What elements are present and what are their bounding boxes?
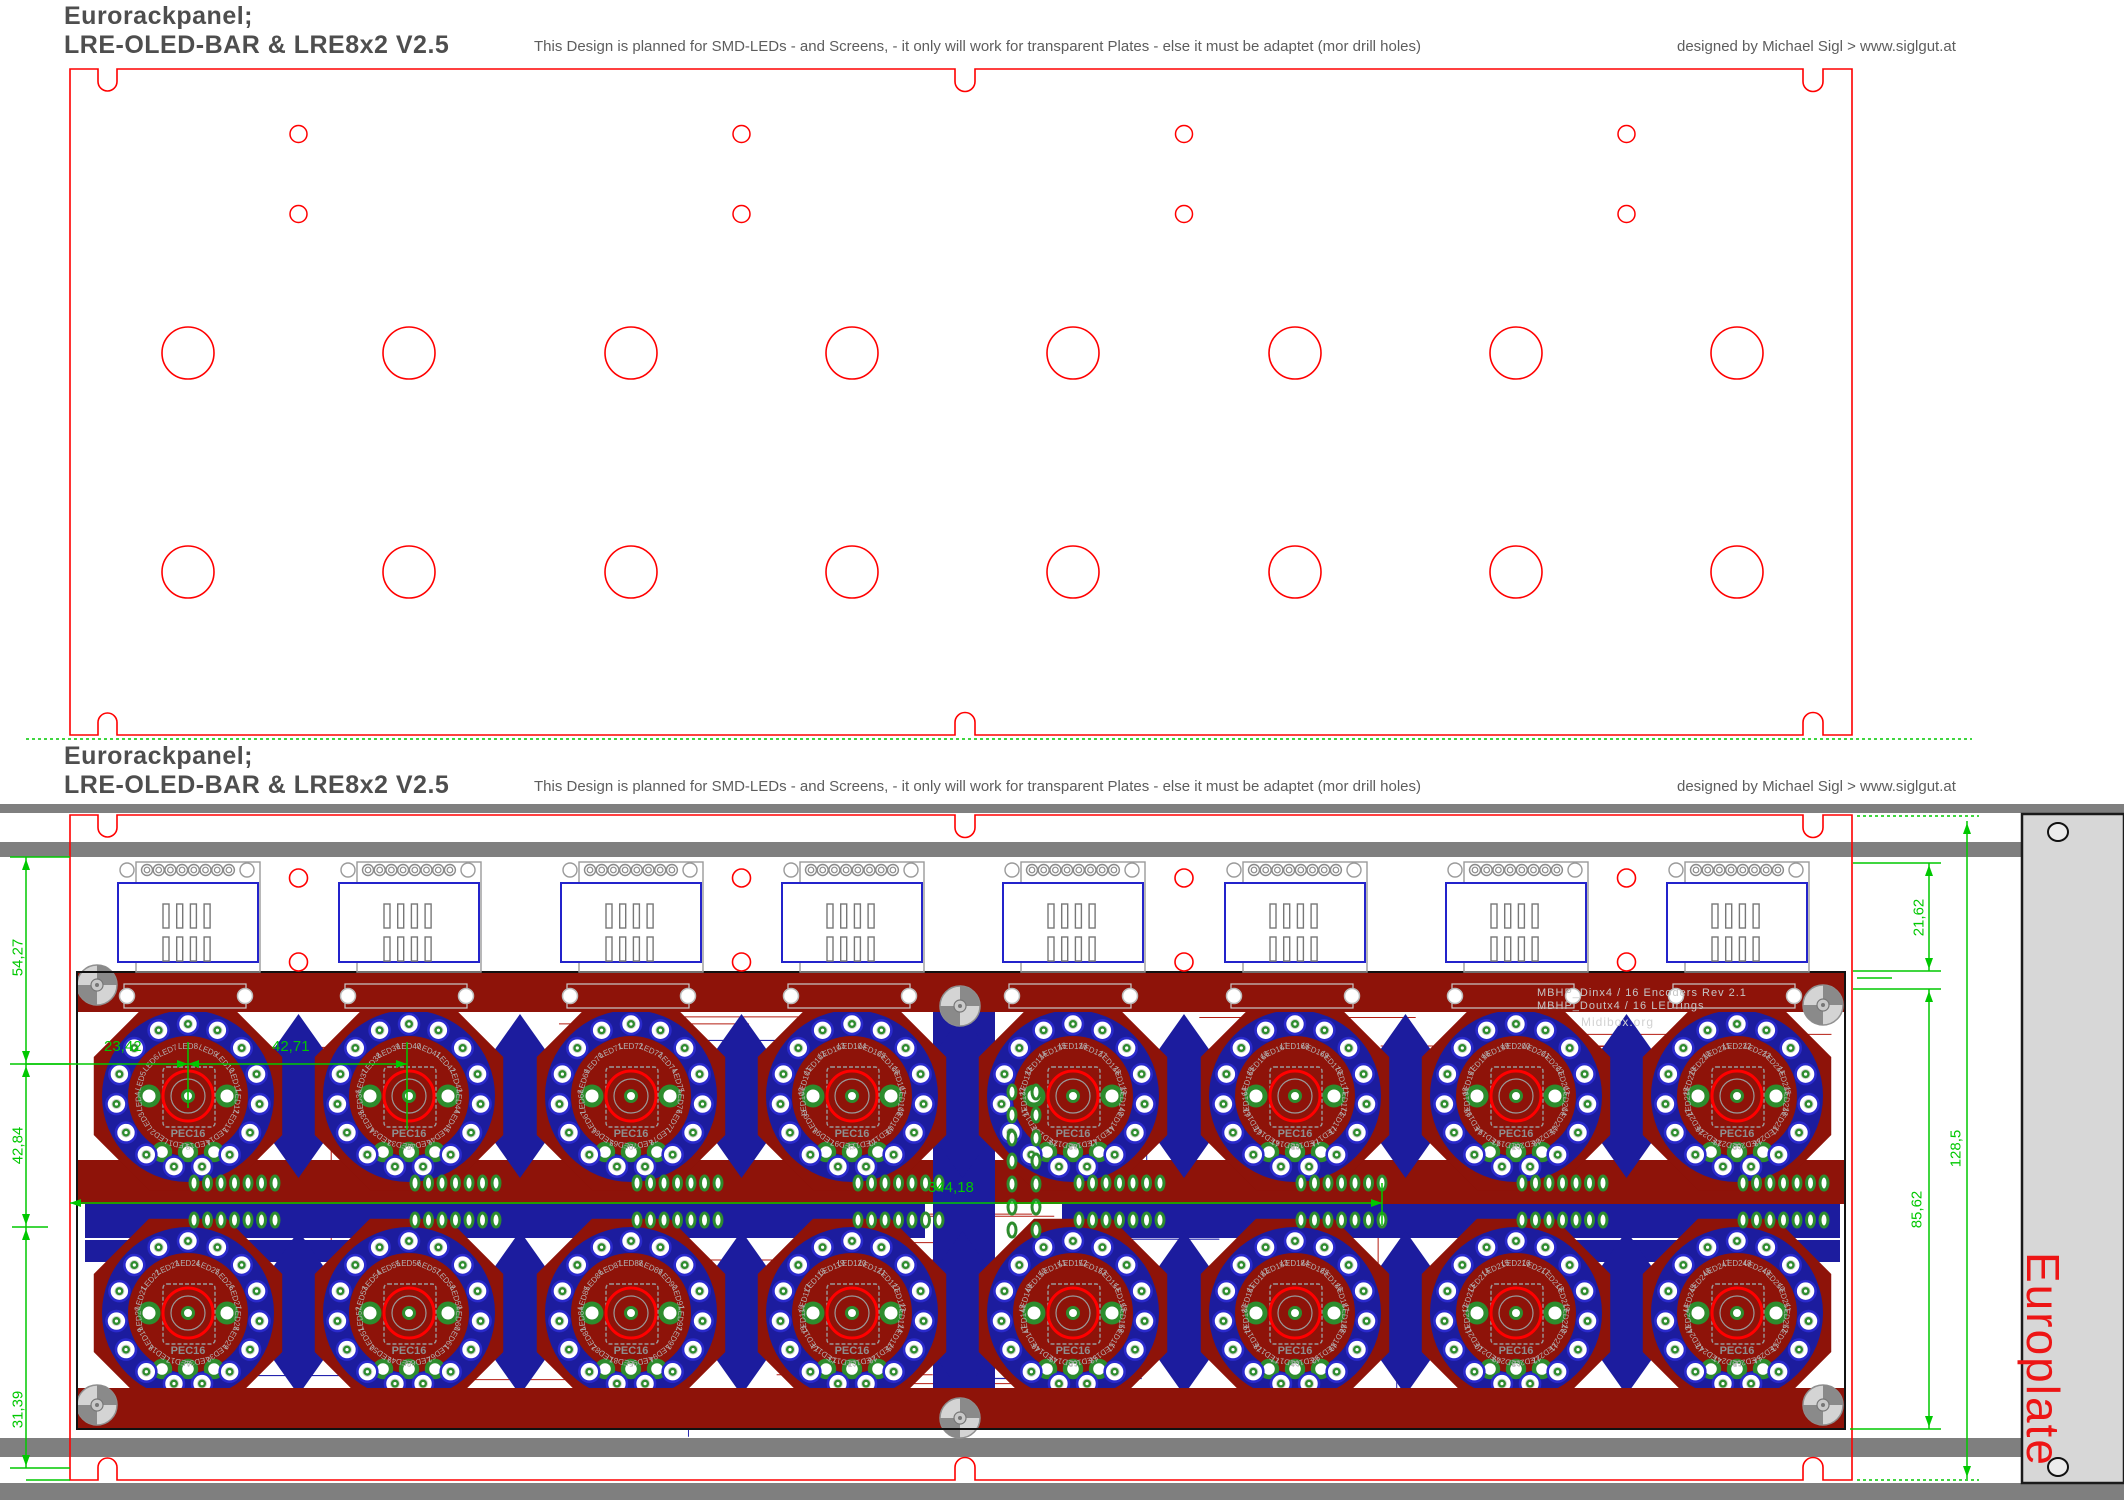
dim-left-54-27: 54,27 [10,913,27,1003]
led-pad-center [1003,1073,1006,1076]
sheet2-credit: designed by Michael Sigl > www.siglgut.a… [1677,778,1956,795]
pin-header-pad [852,865,863,876]
led-pad-center [821,1246,824,1249]
module-mount-pad [902,989,917,1004]
pcb-silk-line2: MBHP_Doutx4 / 16 LEDrings [1537,1000,1704,1012]
resistor-pad [438,1176,446,1190]
led-pad-center [1365,1102,1368,1105]
pin-header-pad [1260,865,1271,876]
pin-header-pad [1085,865,1096,876]
resistor-pad [452,1176,460,1190]
smd-led-pad [620,937,626,961]
led-pad-center [1018,1263,1021,1266]
led-pad-center [1307,1165,1310,1168]
smd-led-pad [606,904,612,928]
screw-dot [1821,1403,1825,1407]
led-pad-center [339,1073,342,1076]
resistor-pad [1075,1176,1083,1190]
dim-right-21-62: 21,62 [1911,873,1928,963]
pin-header-pad [386,865,397,876]
resistor-pad [922,1213,930,1227]
led-pad-center [378,1029,381,1032]
module-mount-hole [1005,863,1019,877]
pin-header-pad [421,865,432,876]
encoder-ref-label: PEC16 [614,1128,649,1140]
through-hole-pad [404,1091,415,1102]
oled-glass-outline [339,883,479,962]
led-pad-center [354,1046,357,1049]
led-pad-center [782,1290,785,1293]
led-pad-center [912,1348,915,1351]
module-mount-hole [461,863,475,877]
resistor-pad [935,1213,943,1227]
resistor-pad [1559,1176,1567,1190]
resistor-pad [1116,1176,1124,1190]
through-hole-pad [847,1091,858,1102]
led-pad-center [255,1290,258,1293]
smd-led-pad [633,904,639,928]
led-pad-center [1085,1165,1088,1168]
resistor-pad [1820,1176,1828,1190]
sheet-title-line1: Eurorackpanel; [64,2,253,31]
led-pad-center [919,1290,922,1293]
dim-arrowhead [22,859,30,870]
smd-led-pad [1518,904,1524,928]
resistor-pad [908,1176,916,1190]
encoder-ref-label: PEC16 [392,1345,427,1357]
led-pad-center [1222,1319,1225,1322]
through-hole-pad [1732,1091,1743,1102]
resistor-pad [1351,1213,1359,1227]
resistor-pad [660,1213,668,1227]
resistor-pad [714,1213,722,1227]
led-pad-center [1789,1263,1792,1266]
dim-arrowhead [22,1229,30,1240]
resistor-pad [452,1213,460,1227]
led-pad-center [904,1046,907,1049]
dim-board-width: 344,18 [928,1179,974,1196]
encoder-ref-label: PEC16 [614,1345,649,1357]
led-pad-center [1009,1348,1012,1351]
led-pad-center [469,1131,472,1134]
led-pad-center [1749,1165,1752,1168]
led-pad-center [255,1073,258,1076]
header-pad [1008,1131,1016,1145]
europlate-label: Europlate [2016,1252,2070,1467]
led-pad-center [588,1370,591,1373]
rack-rail [0,842,2124,857]
header-pad [1008,1154,1016,1168]
resistor-pad [1156,1213,1164,1227]
oled-glass-outline [1225,883,1365,962]
resistor-pad [1572,1213,1580,1227]
led-pad-center [124,1348,127,1351]
led-pad-center [1140,1290,1143,1293]
screw-dot [958,1416,962,1420]
encoder-footprint: LED207LED206LED205LED204LED203LED202LED2… [1422,1002,1610,1190]
resistor-pad [465,1213,473,1227]
led-pad-center [258,1102,261,1105]
smd-led-pad [1491,937,1497,961]
led-pad-center [393,1165,396,1168]
led-pad-center [659,1246,662,1249]
pin-header-pad [1307,865,1318,876]
led-pad-center [1706,1029,1709,1032]
led-pad-center [671,1153,674,1156]
module-mount-hole [240,863,254,877]
resistor-pad [1586,1213,1594,1227]
resistor-pad [1351,1176,1359,1190]
led-pad-center [449,1370,452,1373]
pin-header-pad [188,865,199,876]
led-pad-center [157,1246,160,1249]
resistor-pad [1129,1213,1137,1227]
pin-header-pad [585,865,596,876]
pin-header-pad [363,865,374,876]
smd-led-pad [1048,937,1054,961]
led-pad-center [1003,1290,1006,1293]
led-pad-center [1556,1370,1559,1373]
resistor-pad [411,1176,419,1190]
resistor-pad [492,1213,500,1227]
led-pad-center [788,1348,791,1351]
resistor-pad [465,1176,473,1190]
encoder-footprint: LED127LED126LED125LED124LED123LED122LED1… [758,1219,946,1407]
resistor-pad [674,1176,682,1190]
led-pad-center [1735,1239,1738,1242]
led-pad-center [1544,1246,1547,1249]
led-pad-center [240,1263,243,1266]
pin-header-pad [1108,865,1119,876]
resistor-pad [231,1176,239,1190]
led-pad-center [157,1029,160,1032]
oled-glass-outline [1003,883,1143,962]
smd-led-pad [177,904,183,928]
resistor-pad [1545,1176,1553,1190]
encoder-footprint: LED159LED158LED157LED156LED155LED154LED1… [979,1219,1167,1407]
resistor-pad [1156,1176,1164,1190]
led-pad-center [850,1022,853,1025]
resistor-pad [217,1176,225,1190]
smd-led-pad [1089,937,1095,961]
resistor-pad [1586,1176,1594,1190]
led-pad-center [1804,1073,1807,1076]
led-pad-center [561,1290,564,1293]
led-pad-center [1789,1046,1792,1049]
led-pad-center [248,1348,251,1351]
led-pad-center [1101,1029,1104,1032]
led-pad-center [1765,1029,1768,1032]
smd-led-pad [398,904,404,928]
led-pad-center [1071,1239,1074,1242]
resistor-pad [1793,1176,1801,1190]
pin-header-pad [841,865,852,876]
dim-arrowhead [22,1455,30,1466]
led-pad-center [1485,1029,1488,1032]
smd-led-pad [163,937,169,961]
pin-header-pad [1470,865,1481,876]
module-mount-hole [1125,863,1139,877]
led-pad-center [659,1029,662,1032]
pin-header-pad [1249,865,1260,876]
pin-header-pad [165,865,176,876]
resistor-pad [1559,1213,1567,1227]
led-pad-center [345,1131,348,1134]
led-pad-center [1797,1131,1800,1134]
pin-header-pad [829,865,840,876]
rack-rail [0,804,2124,813]
led-pad-center [407,1022,410,1025]
encoder-ref-label: PEC16 [835,1128,870,1140]
led-pad-center [904,1263,907,1266]
resistor-pad [1338,1213,1346,1227]
resistor-pad [881,1176,889,1190]
led-pad-center [1568,1046,1571,1049]
led-pad-center [118,1073,121,1076]
led-pad-center [118,1290,121,1293]
led-pad-center [1694,1370,1697,1373]
resistor-pad [1297,1176,1305,1190]
led-pad-center [1240,1046,1243,1049]
resistor-pad [701,1213,709,1227]
led-pad-center [1279,1165,1282,1168]
encoder-ref-label: PEC16 [171,1345,206,1357]
led-pad-center [1673,1348,1676,1351]
led-pad-center [788,1131,791,1134]
pin-header-pad [409,865,420,876]
smd-led-pad [1739,937,1745,961]
led-pad-center [1042,1246,1045,1249]
resistor-pad [244,1176,252,1190]
pin-header-pad [1062,865,1073,876]
smd-led-pad [411,904,417,928]
led-pad-center [1664,1319,1667,1322]
smd-led-pad [1532,904,1538,928]
led-pad-center [1335,1153,1338,1156]
through-hole-pad [1068,1091,1079,1102]
led-pad-center [1514,1239,1517,1242]
led-pad-center [216,1029,219,1032]
module-mount-pad [459,989,474,1004]
resistor-pad [1599,1213,1607,1227]
smd-led-pad [868,937,874,961]
dim-right-128-5: 128,5 [1948,1104,1965,1194]
smd-led-pad [398,937,404,961]
led-pad-center [1556,1153,1559,1156]
led-pad-center [1355,1348,1358,1351]
resistor-pad [687,1213,695,1227]
pin-header-pad [212,865,223,876]
resistor-pad [258,1213,266,1227]
encoder-ref-label: PEC16 [1720,1345,1755,1357]
smd-led-pad [1712,904,1718,928]
led-pad-center [912,1131,915,1134]
smd-led-pad [204,904,210,928]
led-pad-center [1335,1370,1338,1373]
pin-header-pad [1038,865,1049,876]
through-hole-pad [1290,1091,1301,1102]
resistor-pad [674,1213,682,1227]
led-pad-center [469,1348,472,1351]
led-pad-center [145,1153,148,1156]
resistor-pad [1518,1176,1526,1190]
resistor-pad [647,1176,655,1190]
resistor-pad [687,1176,695,1190]
led-pad-center [1694,1153,1697,1156]
led-pad-center [1667,1290,1670,1293]
led-pad-center [1721,1165,1724,1168]
smd-led-pad [204,937,210,961]
led-pad-center [1583,1290,1586,1293]
smd-led-pad [647,937,653,961]
encoder-footprint: LED111LED110LED109LED108LED107LED106LED1… [758,1002,946,1190]
dim-left-31-39: 31,39 [10,1365,27,1455]
resistor-pad [271,1176,279,1190]
resistor-pad [190,1213,198,1227]
resistor-pad [1820,1213,1828,1227]
led-pad-center [836,1165,839,1168]
sheet2-title-line1: Eurorackpanel; [64,742,253,771]
smd-led-pad [606,937,612,961]
encoder-ref-label: PEC16 [392,1128,427,1140]
pin-header-pad [806,865,817,876]
pin-header-pad [153,865,164,876]
led-pad-center [919,1073,922,1076]
led-pad-center [615,1165,618,1168]
resistor-pad [633,1176,641,1190]
led-pad-center [186,1022,189,1025]
resistor-pad [1365,1213,1373,1227]
led-pad-center [200,1382,203,1385]
resistor-pad [1311,1176,1319,1190]
panel-drawing-canvas: LED15LED14LED13LED12LED11LED10LED9LED8LE… [0,0,2124,1500]
top-panel-face [70,69,1852,735]
led-pad-center [643,1382,646,1385]
pin-header-pad [876,865,887,876]
pin-header-pad [1737,865,1748,876]
header-pad [1032,1131,1040,1145]
led-pad-center [1706,1246,1709,1249]
dim-arrowhead [1963,823,1971,834]
resistor-pad [1311,1213,1319,1227]
led-pad-center [629,1022,632,1025]
smd-led-pad [1284,904,1290,928]
bottom-assembly-drawing: LED15LED14LED13LED12LED11LED10LED9LED8LE… [0,804,2124,1500]
through-hole-pad [1290,1308,1301,1319]
led-pad-center [1365,1319,1368,1322]
resistor-pad [1338,1176,1346,1190]
led-pad-center [1514,1022,1517,1025]
led-pad-center [1667,1073,1670,1076]
led-pad-center [1000,1102,1003,1105]
header-pad [1008,1177,1016,1191]
module-mount-hole [1789,863,1803,877]
smd-led-pad [1712,937,1718,961]
module-mount-pad [341,989,356,1004]
module-mount-hole [904,863,918,877]
header-pad [1032,1200,1040,1214]
led-pad-center [1664,1102,1667,1105]
resistor-pad [1089,1213,1097,1227]
resistor-pad [1766,1176,1774,1190]
module-mount-hole [341,863,355,877]
resistor-pad [1532,1213,1540,1227]
module-mount-pad [1123,989,1138,1004]
resistor-pad [647,1213,655,1227]
led-pad-center [421,1165,424,1168]
led-pad-center [479,1102,482,1105]
encoder-ref-label: PEC16 [1056,1128,1091,1140]
resistor-pad [1753,1213,1761,1227]
smd-led-pad [1297,904,1303,928]
resistor-pad [854,1176,862,1190]
dim-left-42-84: 42,84 [10,1101,27,1191]
led-pad-center [797,1263,800,1266]
led-pad-center [1749,1382,1752,1385]
smd-led-pad [425,904,431,928]
pin-header-pad [1772,865,1783,876]
led-pad-center [461,1046,464,1049]
resistor-pad [1739,1176,1747,1190]
through-hole-pad [626,1091,637,1102]
led-pad-center [1473,1153,1476,1156]
smd-led-pad [411,937,417,961]
module-mount-hole [1347,863,1361,877]
module-mount-hole [683,863,697,877]
led-pad-center [366,1153,369,1156]
pin-header-pad [142,865,153,876]
header-pad [1032,1154,1040,1168]
led-pad-center [1576,1131,1579,1134]
encoder-ref-label: PEC16 [1499,1128,1534,1140]
led-pad-center [248,1131,251,1134]
led-pad-center [200,1165,203,1168]
smd-led-pad [620,904,626,928]
resistor-pad [479,1176,487,1190]
encoder-ref-label: PEC16 [1056,1345,1091,1357]
led-pad-center [366,1370,369,1373]
smd-led-pad [190,937,196,961]
led-pad-center [558,1319,561,1322]
dim-right-85-62: 85,62 [1909,1165,1926,1255]
module-mount-pad [1005,989,1020,1004]
led-pad-center [779,1102,782,1105]
smd-led-pad [1270,937,1276,961]
led-pad-center [588,1153,591,1156]
led-pad-center [1113,1370,1116,1373]
pin-header-pad [1528,865,1539,876]
led-pad-center [821,1029,824,1032]
led-pad-center [1101,1246,1104,1249]
pin-header-pad [864,865,875,876]
resistor-pad [1089,1176,1097,1190]
header-pad [1032,1177,1040,1191]
led-pad-center [864,1165,867,1168]
dim-arrowhead [1925,1416,1933,1427]
led-pad-center [1528,1382,1531,1385]
led-pad-center [1323,1029,1326,1032]
encoder-ref-label: PEC16 [1720,1128,1755,1140]
led-pad-center [133,1263,136,1266]
smd-led-pad [163,904,169,928]
pin-header-pad [374,865,385,876]
led-pad-center [476,1073,479,1076]
led-pad-center [1500,1165,1503,1168]
pin-header-pad [1330,865,1341,876]
led-pad-center [172,1382,175,1385]
screw-dot [1821,1003,1825,1007]
led-pad-center [880,1246,883,1249]
